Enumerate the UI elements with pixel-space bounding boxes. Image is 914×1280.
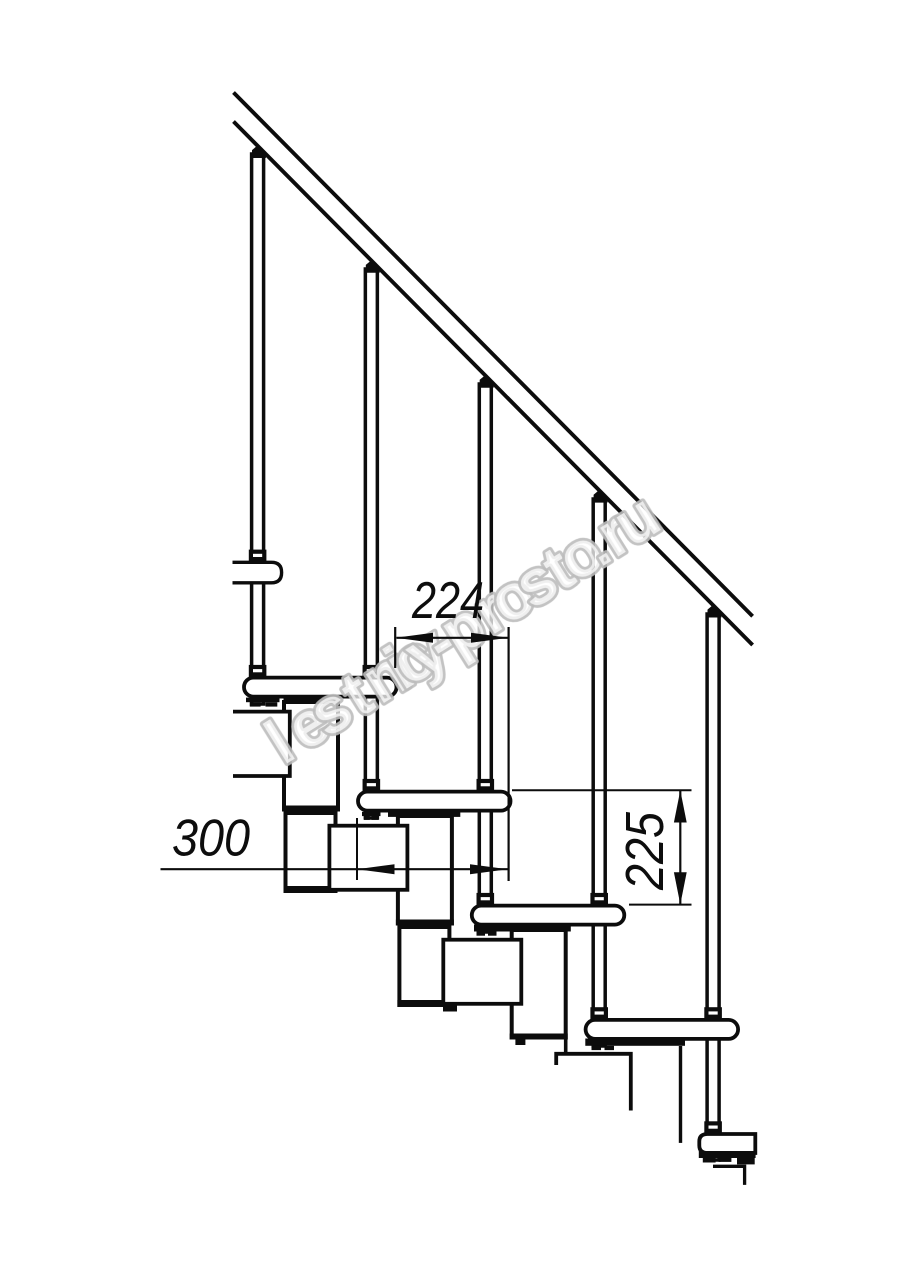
svg-text:225: 225	[615, 811, 675, 891]
svg-text:300: 300	[172, 810, 250, 868]
svg-text:224: 224	[411, 572, 484, 630]
